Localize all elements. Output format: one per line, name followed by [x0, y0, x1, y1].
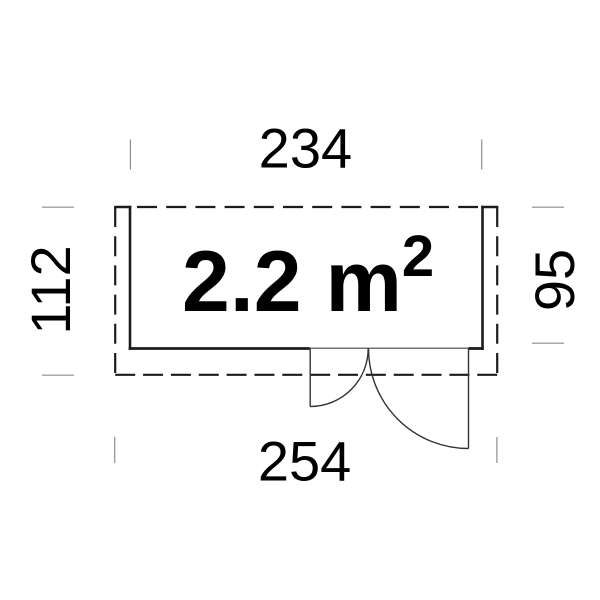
svg-text:112: 112: [19, 245, 82, 334]
svg-text:254: 254: [258, 429, 351, 492]
svg-text:2.2 m2: 2.2 m2: [182, 224, 434, 330]
svg-text:95: 95: [523, 249, 586, 311]
svg-text:234: 234: [259, 117, 352, 180]
